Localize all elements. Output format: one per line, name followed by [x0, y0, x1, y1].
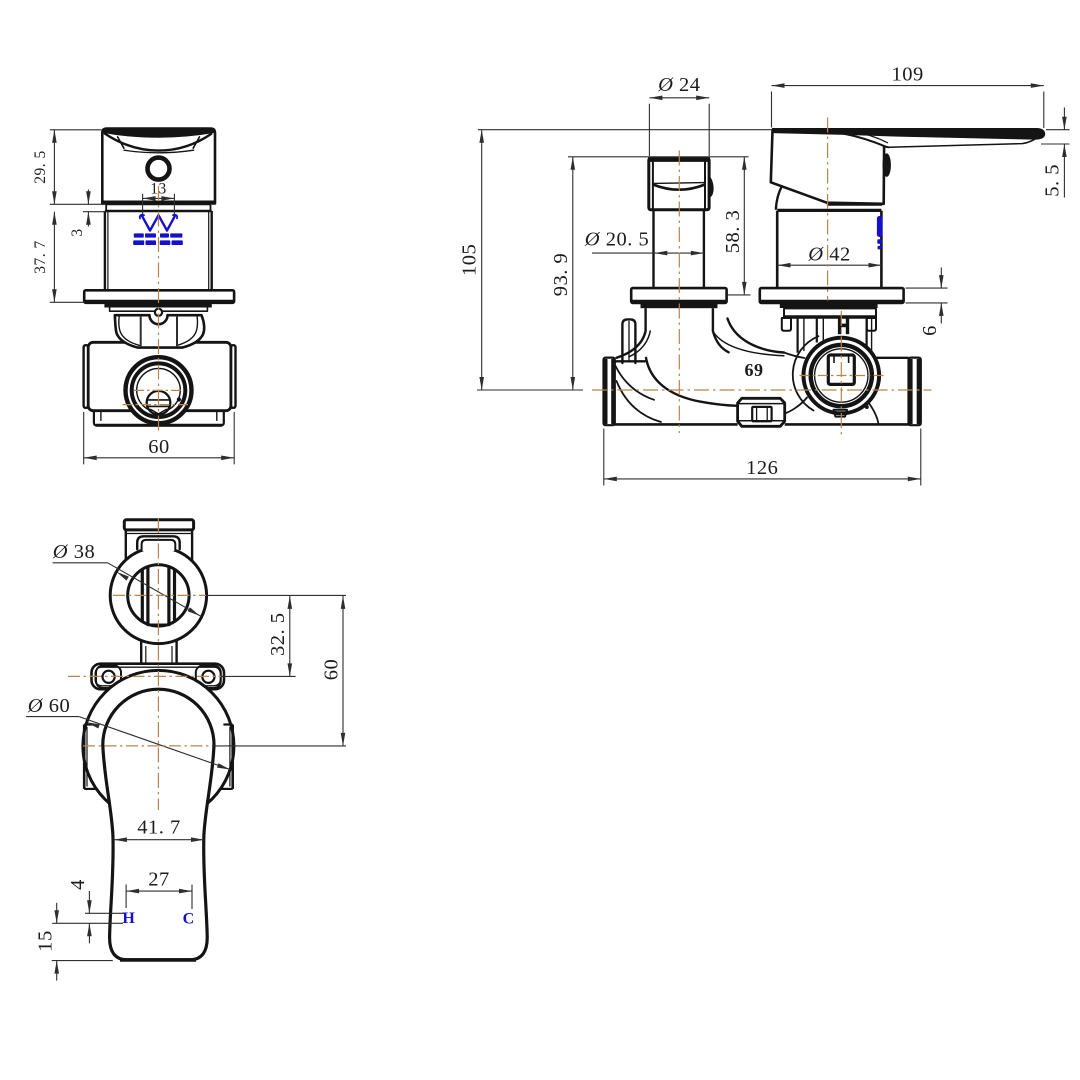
svg-text:Ø 60: Ø 60: [27, 695, 70, 717]
svg-text:Ø 42: Ø 42: [807, 244, 850, 266]
svg-text:Ø 20. 5: Ø 20. 5: [584, 229, 649, 251]
svg-text:60: 60: [321, 659, 343, 681]
svg-text:15: 15: [34, 930, 56, 952]
svg-text:Ø 24: Ø 24: [657, 74, 700, 96]
svg-text:58. 3: 58. 3: [722, 210, 744, 254]
svg-text:6: 6: [919, 325, 941, 336]
svg-text:60: 60: [148, 436, 170, 458]
svg-text:41. 7: 41. 7: [137, 817, 181, 839]
svg-text:32. 5: 32. 5: [267, 612, 289, 656]
svg-text:37. 7: 37. 7: [32, 240, 49, 274]
svg-text:126: 126: [746, 457, 778, 479]
svg-text:4: 4: [67, 879, 89, 890]
svg-text:105: 105: [459, 244, 481, 276]
svg-text:3: 3: [69, 228, 86, 236]
svg-text:C: C: [183, 911, 195, 928]
svg-text:H: H: [122, 910, 135, 927]
svg-text:Ø 38: Ø 38: [52, 541, 95, 563]
svg-text:27: 27: [148, 869, 170, 891]
svg-text:109: 109: [892, 64, 924, 86]
svg-text:69: 69: [745, 360, 764, 380]
svg-text:29. 5: 29. 5: [32, 150, 49, 184]
svg-text:93. 9: 93. 9: [550, 253, 572, 297]
svg-text:5. 5: 5. 5: [1042, 164, 1064, 197]
